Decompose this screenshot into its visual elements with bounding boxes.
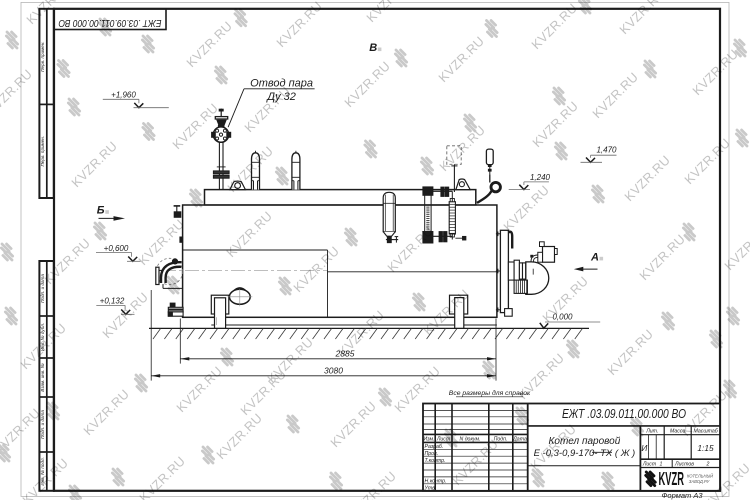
svg-text:N докум.: N докум. [460, 436, 481, 442]
svg-text:+1,960: +1,960 [111, 91, 136, 100]
svg-text:А: А [590, 251, 599, 263]
svg-text:1: 1 [660, 461, 663, 467]
svg-text:Пров.: Пров. [425, 451, 439, 457]
svg-text:Формат А3: Формат А3 [661, 491, 703, 500]
svg-text:КОТЕЛЬНЫЙ: КОТЕЛЬНЫЙ [687, 474, 713, 479]
svg-text:+0,600: +0,600 [104, 244, 129, 253]
svg-text:Подп.: Подп. [494, 436, 508, 442]
svg-text:Т.контр.: Т.контр. [425, 458, 446, 464]
svg-text:В: В [369, 42, 377, 54]
svg-text:Утв.: Утв. [425, 486, 437, 492]
svg-text:ЕЖТ .03.09.011.00.000 ВО: ЕЖТ .03.09.011.00.000 ВО [58, 17, 161, 28]
svg-text:Взам. инв. №: Взам. инв. № [40, 363, 45, 391]
svg-text:3080: 3080 [324, 366, 343, 376]
svg-text:Лит.: Лит. [645, 429, 658, 435]
svg-text:Дата: Дата [512, 436, 527, 442]
svg-text:Перв. примен.: Перв. примен. [40, 136, 45, 167]
svg-text:ЗАВОД.РУ: ЗАВОД.РУ [689, 479, 711, 484]
svg-text:+0,132: +0,132 [100, 297, 125, 306]
svg-text:1,470: 1,470 [596, 146, 617, 155]
svg-text:Б: Б [97, 205, 105, 217]
svg-text:1:15: 1:15 [697, 443, 714, 453]
svg-text:И: И [641, 443, 647, 453]
svg-text:ЕЖТ .03.09.011.00.000 ВО: ЕЖТ .03.09.011.00.000 ВО [562, 406, 686, 421]
svg-text:Изм.: Изм. [423, 436, 434, 442]
svg-text:1,240: 1,240 [530, 173, 551, 182]
svg-text:Разраб.: Разраб. [425, 444, 444, 450]
svg-text:2: 2 [706, 461, 710, 467]
svg-text:Лист: Лист [642, 461, 657, 467]
svg-text:KVZR: KVZR [659, 468, 685, 489]
svg-text:Перв. примен.: Перв. примен. [40, 41, 45, 72]
svg-text:Листов: Листов [674, 461, 694, 467]
svg-text:Н.контр.: Н.контр. [425, 479, 447, 485]
